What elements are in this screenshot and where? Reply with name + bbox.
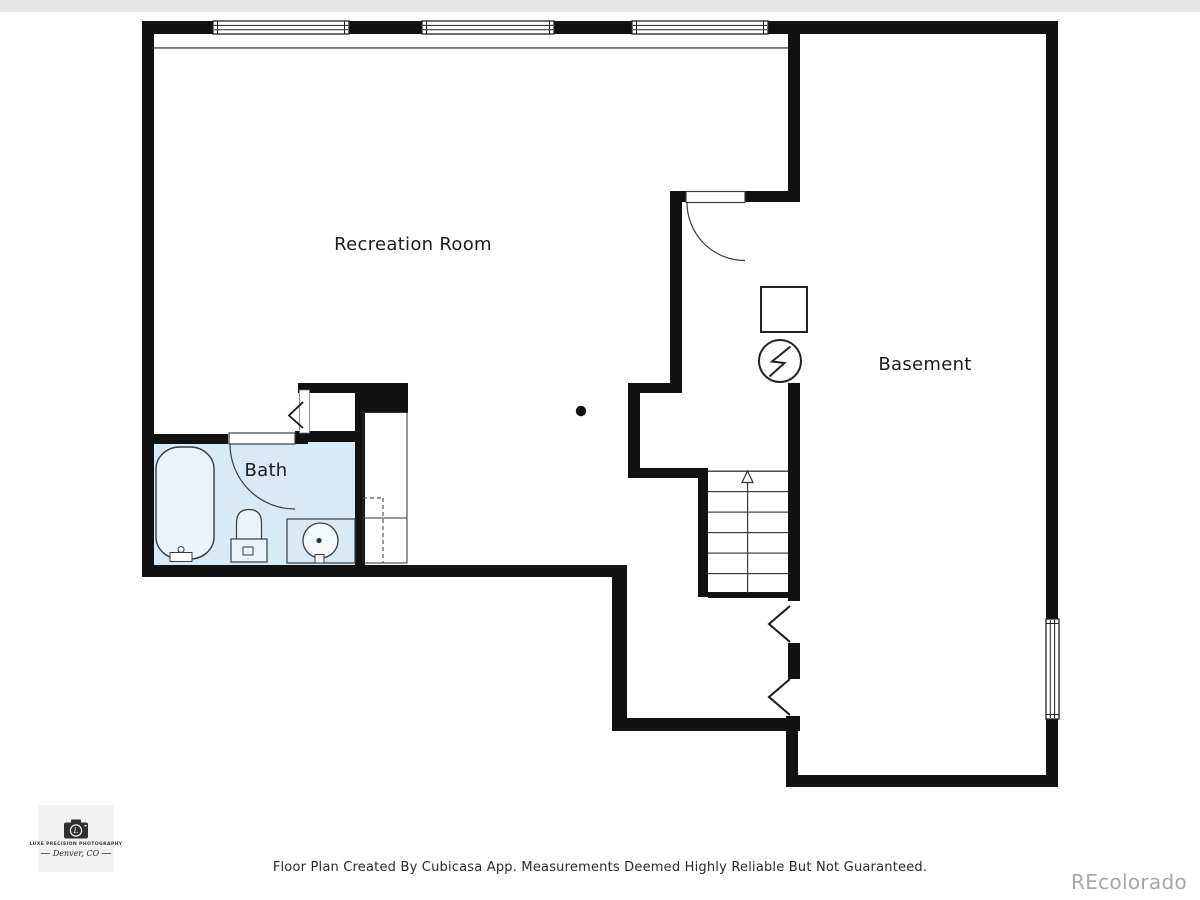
window [213, 21, 349, 34]
wall-basement-bottom [786, 775, 1058, 787]
stairs-up-arrow-icon [742, 471, 753, 483]
electrical-panel-icon [761, 287, 807, 332]
footer-disclaimer: Floor Plan Created By Cubicasa App. Meas… [0, 860, 1200, 875]
utility-closet [363, 413, 407, 564]
floor-plan: Recreation Room Bath Basement [0, 0, 1200, 900]
room-label-recreation: Recreation Room [334, 234, 492, 255]
hall-door-leaf [686, 192, 745, 203]
wall-right-upper [1046, 21, 1058, 619]
wall-stairs-left [698, 468, 708, 597]
wall-right-lower [1046, 719, 1058, 787]
wall-left [142, 21, 154, 577]
column-dot [576, 406, 586, 416]
window [632, 21, 768, 34]
logo-city: Denver, CO [53, 849, 99, 858]
wall-stairs-top [628, 468, 708, 478]
logo-studio-name: LUXE PRECISION PHOTOGRAPHY [30, 842, 123, 847]
logo-flourish-right [102, 853, 111, 854]
electric-meter-icon [759, 340, 801, 382]
recolorado-watermark: REcolorado [1071, 870, 1187, 894]
basement-door1-chevron-icon [769, 606, 790, 642]
wall-hall-bottom [612, 718, 798, 731]
wall-basement-divider [788, 21, 800, 202]
wall-bath-top [142, 434, 228, 444]
bathtub-faucet [170, 553, 192, 562]
wall-door-right [745, 191, 800, 202]
toilet-tank [231, 539, 267, 562]
sink-drain [316, 538, 321, 543]
wall-between-doors [788, 643, 800, 679]
basement-door2-chevron-icon [769, 679, 790, 715]
windows-top [213, 21, 768, 34]
window [422, 21, 554, 34]
walls [142, 21, 1058, 787]
logo-flourish-left [41, 853, 50, 854]
stairs-center-line [747, 471, 748, 593]
window-right [1046, 619, 1059, 719]
wall-below-door2 [788, 716, 800, 731]
wall-jog-vertical [628, 383, 640, 478]
camera-icon: L [63, 819, 89, 840]
bath-door-leaf [229, 433, 295, 444]
svg-text:L: L [73, 827, 79, 835]
bathtub [156, 447, 214, 559]
room-label-basement: Basement [878, 354, 971, 375]
wall-nook-bottom [302, 431, 355, 442]
wall-inner-face-line [154, 47, 788, 48]
room-label-bath: Bath [244, 460, 287, 481]
toilet-bowl [237, 510, 262, 541]
wall-inner-strip [154, 34, 788, 47]
hall-door-arc [687, 203, 745, 261]
bathtub-faucet-knob [178, 547, 184, 553]
wall-recroom-bottom [142, 565, 627, 577]
wall-hall-vertical [670, 191, 682, 383]
wall-step-vertical [612, 565, 627, 731]
stairs [708, 471, 788, 599]
utility-dashed-outline [363, 498, 383, 563]
sink-faucet [315, 555, 324, 564]
wall-stairs-right [788, 383, 800, 601]
wall-block [362, 383, 408, 413]
